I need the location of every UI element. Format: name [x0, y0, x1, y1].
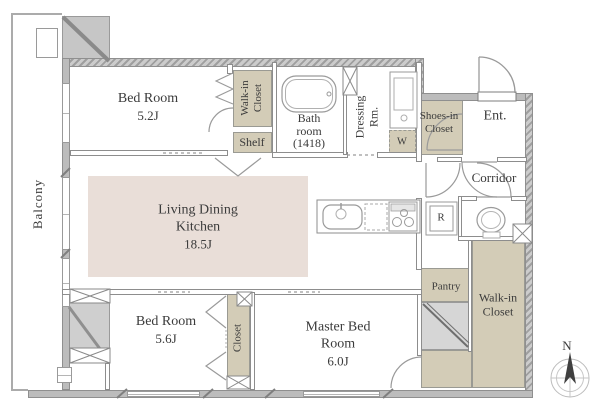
master-bedroom-size: 6.0J: [306, 353, 371, 369]
master-bedroom-label: Master Bed Room 6.0J: [306, 319, 371, 368]
wall-ldk-bedrooms: [62, 289, 422, 295]
wall-bedroom1-right-stub: [227, 64, 233, 74]
wall-corridor-ent-b: [497, 157, 527, 162]
bedroom1-name: Bed Room: [118, 91, 178, 108]
walk-in-closet-top-label: Walk-in Closet: [239, 80, 265, 115]
compass-icon: [551, 352, 589, 397]
balcony-label: Balcony: [30, 179, 46, 229]
wall-bath-bottom: [272, 152, 348, 158]
shoes-in-closet-label: Shoes-in Closet: [420, 110, 459, 136]
wall-master-right: [417, 294, 422, 356]
shelf-label: Shelf: [239, 135, 264, 149]
window-bedroom2-side: [57, 367, 72, 383]
floor-plan: Balcony Bed Room 5.2J Walk-in Closet She…: [0, 0, 600, 413]
bathroom-size: (1418): [293, 137, 325, 150]
ldk-size: 18.5J: [158, 236, 238, 252]
wall-toilet-left: [458, 196, 462, 241]
window-ldk-2: [62, 258, 70, 307]
balcony-corner-block: [62, 16, 110, 62]
wall-wic-bath: [272, 62, 277, 158]
ldk-label: Living Dining Kitchen 18.5J: [158, 202, 238, 251]
corridor-label: Corridor: [472, 170, 517, 186]
doorway-master: [288, 290, 320, 294]
dressing-room-label: Dressing Rm.: [353, 96, 382, 139]
window-bedroom1: [62, 83, 70, 143]
wall-right: [525, 93, 533, 397]
wall-bottom: [28, 390, 533, 398]
wall-dressing-bottom: [377, 152, 417, 158]
wall-bedroom1-bottom: [70, 150, 228, 156]
balcony-screen: [36, 28, 58, 58]
window-ldk-1: [62, 177, 70, 250]
bedroom2-label: Bed Room 5.6J: [136, 314, 196, 346]
duct-block-bottom-left: [66, 302, 110, 363]
wall-wic-right-left: [468, 240, 472, 352]
closet-label: Closet: [231, 324, 244, 352]
fridge-label: R: [437, 211, 444, 224]
compass-north-label: N: [562, 338, 571, 354]
wall-bath-dressing: [343, 93, 347, 155]
bedroom2-size: 5.6J: [136, 331, 196, 347]
bedroom1-size: 5.2J: [118, 108, 178, 124]
wall-kitchen-right: [416, 198, 422, 270]
wall-top: [66, 58, 422, 67]
doorway-bedroom2: [158, 290, 190, 294]
pipe-duct-box: [421, 302, 470, 350]
wall-entrance-left: [415, 93, 479, 101]
wall-bedroom2-left: [105, 363, 110, 390]
window-bedroom2-bottom: [127, 391, 200, 397]
walk-in-closet-right-label: Walk-in Closet: [479, 291, 517, 320]
washer-label: W: [397, 137, 407, 150]
window-master-bottom: [303, 391, 380, 397]
wall-toilet-top-b: [511, 196, 527, 201]
wall-closet-right: [250, 292, 255, 390]
entrance-label: Ent.: [484, 109, 507, 126]
pantry-label: Pantry: [432, 280, 461, 293]
bedroom2-name: Bed Room: [136, 314, 196, 331]
walk-in-closet-right-ext-fill: [421, 350, 472, 388]
wall-corridor-ent-a: [437, 157, 462, 162]
bedroom1-label: Bed Room 5.2J: [118, 91, 178, 123]
bathroom-label: Bath room (1418): [293, 112, 325, 150]
